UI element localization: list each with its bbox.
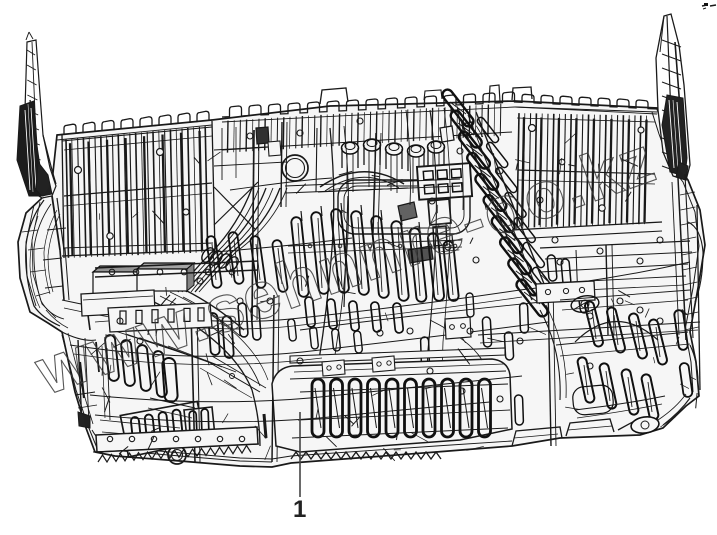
svg-text:1: 1 xyxy=(293,496,306,523)
